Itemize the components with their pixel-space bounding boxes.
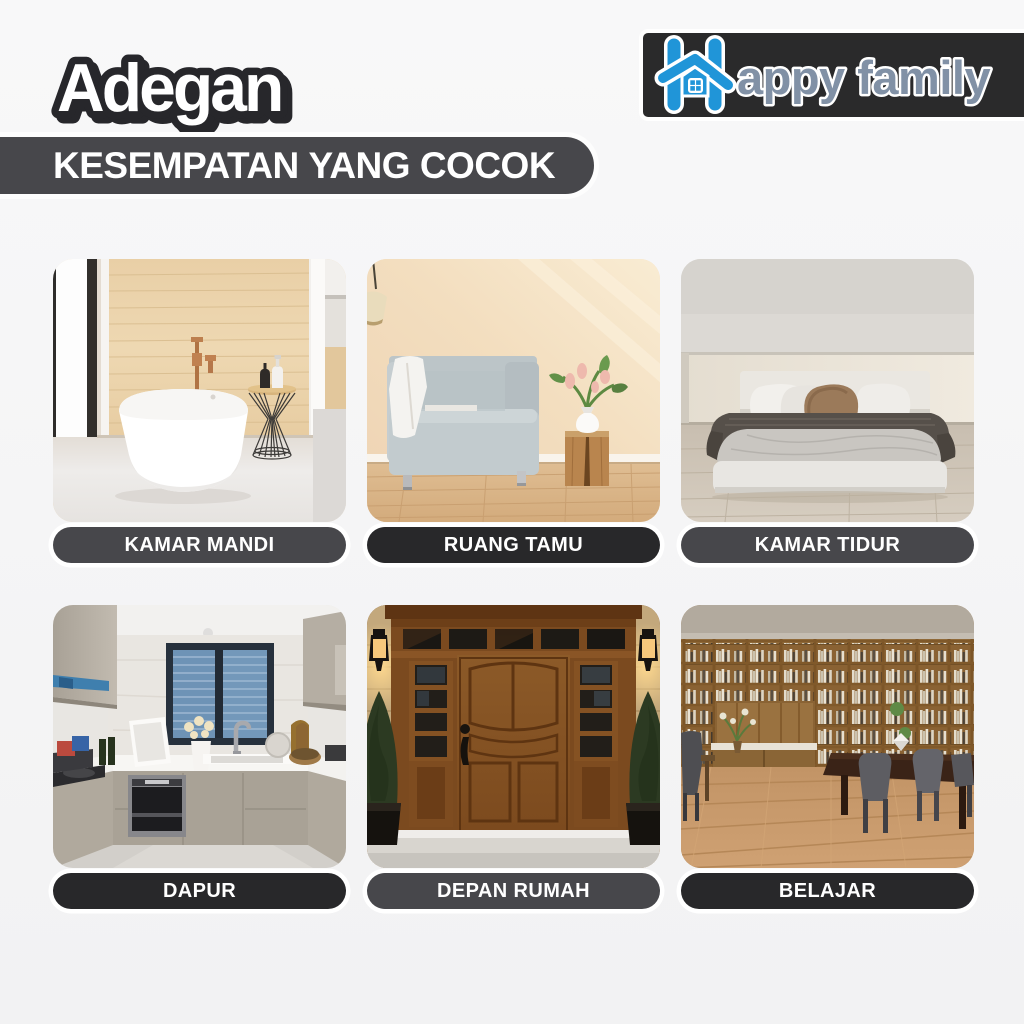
- svg-text:appy family: appy family: [737, 51, 990, 104]
- svg-text:Adegan: Adegan: [57, 50, 281, 126]
